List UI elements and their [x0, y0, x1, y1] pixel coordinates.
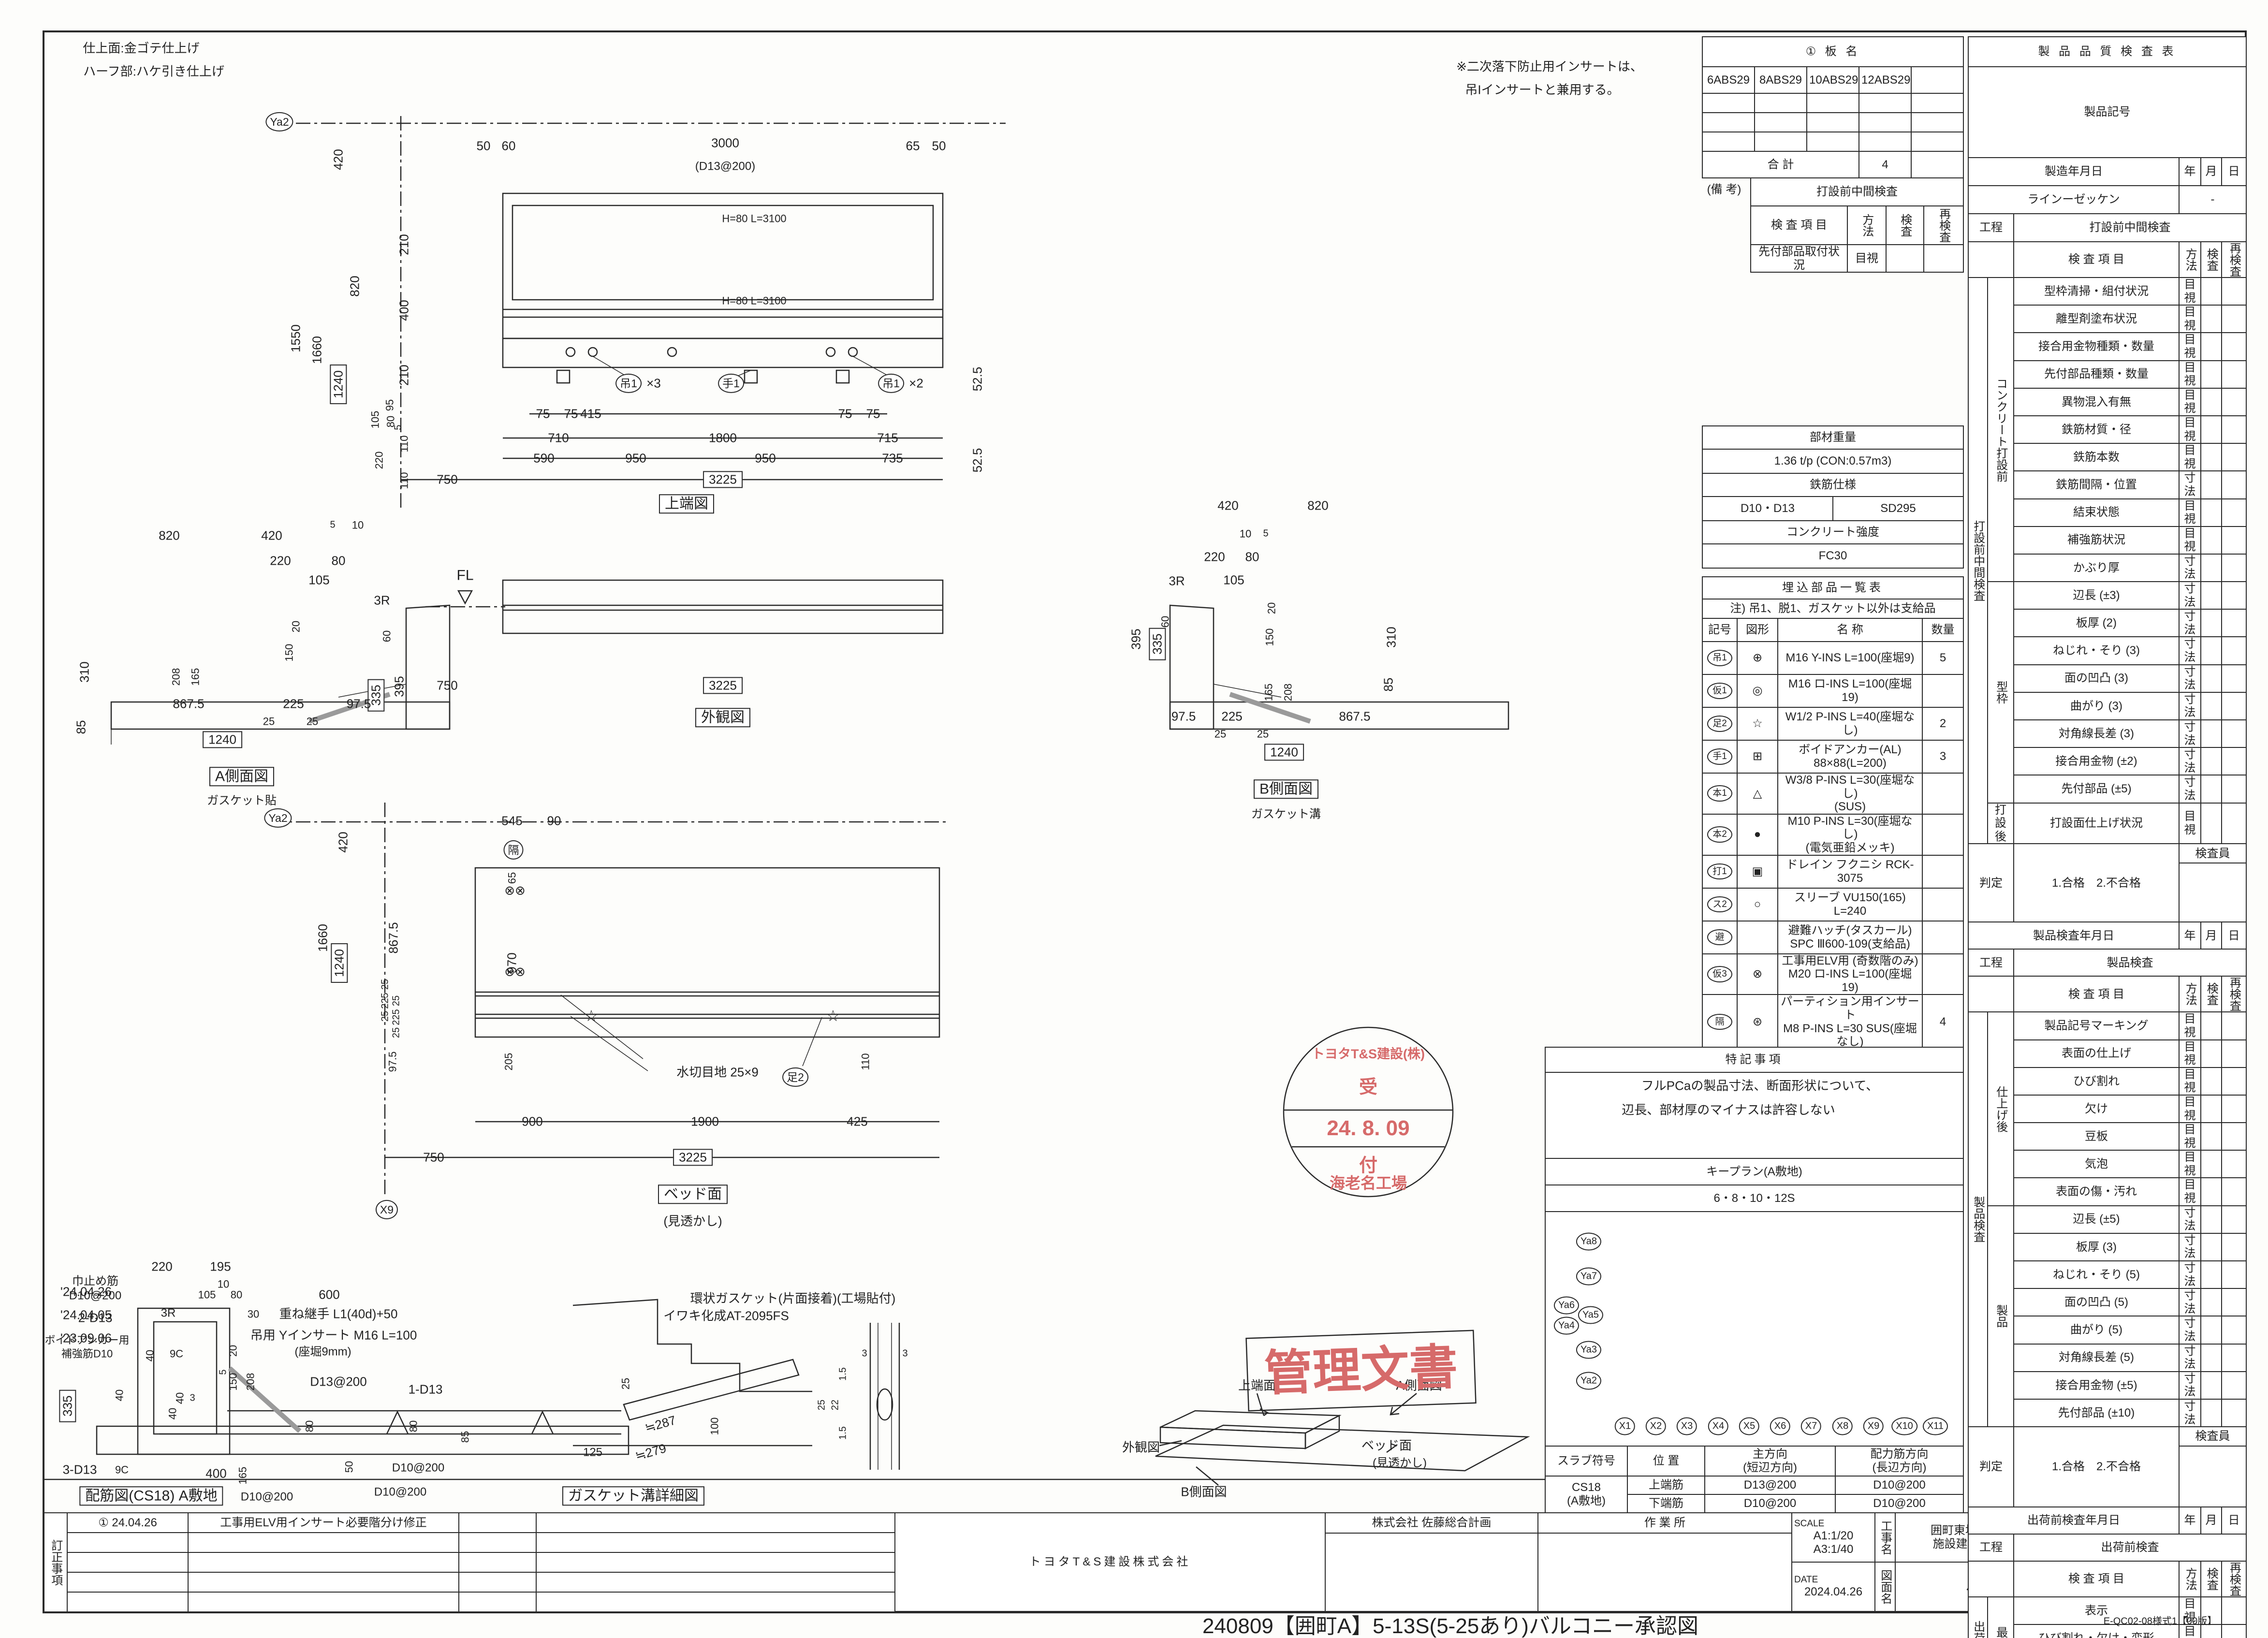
dim-label: Ya7: [1576, 1268, 1601, 1286]
cell-titleblock: 工事名: [1875, 1513, 1895, 1562]
cell-quality: 出荷前検査年月日: [1968, 1507, 2179, 1534]
dim-label: 400: [205, 1467, 226, 1480]
dim-label: 外観図: [1122, 1441, 1160, 1454]
cell-parts: 足2: [1702, 707, 1737, 740]
dim-label: 1.5: [838, 1426, 849, 1440]
cell-quality: 対角線長差 (3): [2014, 720, 2179, 747]
cell-quality: 製品検査: [1968, 1012, 1988, 1427]
dim-label: 85: [1382, 678, 1395, 692]
dim-label: 97.5: [1171, 710, 1196, 723]
cell-parts: W3/8 P-INS L=30(座堀なし)(SUS): [1778, 773, 1922, 814]
dim-label: 1900: [691, 1115, 719, 1128]
cell-quality: 出荷前検査: [1968, 1597, 1988, 1638]
table-weight: 部材重量1.36 t/p (CON:0.57m3)鉄筋仕様D10・D13SD29…: [1702, 425, 1964, 569]
dim-label: 420: [332, 149, 345, 170]
cell-slab: 配力筋方向(長辺方向): [1835, 1446, 1963, 1476]
cell-revision: [188, 1552, 459, 1572]
cell-quality: [2222, 278, 2246, 305]
cell-quality: [2222, 1372, 2246, 1399]
cell-quality: 工程: [1968, 949, 2014, 976]
dim-label: 395: [393, 676, 406, 697]
special-notes-title: 特記事項: [1545, 1047, 1963, 1072]
cell-weight: コンクリート強度: [1702, 521, 1963, 544]
cell-parts: 仮3: [1702, 954, 1737, 995]
cell-quality: 再検査: [2222, 976, 2246, 1012]
cell-keyplanbox: 6・8・10・12S: [1545, 1185, 1963, 1212]
view-title-bed: ベッド面: [658, 1185, 728, 1204]
cell-quality: [2201, 554, 2222, 582]
dim-label: 25: [263, 716, 275, 727]
cell-itaban: [1702, 113, 1755, 132]
dim-label: H=80 L=3100: [722, 295, 786, 306]
cell-parts: 隔: [1702, 994, 1737, 1049]
cell-quality: 目視: [2179, 333, 2201, 360]
dim-label: 420: [337, 832, 350, 852]
cell-slab: D10@200: [1835, 1476, 1963, 1494]
dim-label: 750: [423, 1151, 444, 1164]
cell-quality: 目視: [2179, 443, 2201, 471]
cell-precheck: 打設前中間検査: [1751, 178, 1963, 206]
cell-parts: パーティション用インサートM8 P-INS L=30 SUS(座堀なし): [1778, 994, 1922, 1049]
cell-revision: [67, 1533, 188, 1552]
cell-itaban: [1911, 67, 1963, 93]
cell-quality: [2201, 443, 2222, 471]
cell-titleblock: SCALEA1:1/20A3:1/40: [1792, 1513, 1875, 1562]
dim-label: 867.5: [173, 697, 204, 710]
dim-label: 75: [838, 407, 852, 420]
dim-label: 105: [1223, 573, 1244, 586]
cell-quality: 方法: [2179, 1561, 2201, 1597]
embedded-parts-title: 埋込部品一覧表: [1702, 577, 1963, 599]
table-keyplanbox: キープラン(A敷地)6・8・10・12S: [1545, 1158, 1964, 1447]
dim-label: 吊1: [878, 374, 904, 393]
cell-parts: △: [1737, 773, 1778, 814]
cell-quality: [2201, 526, 2222, 554]
cell-itaban: [1911, 151, 1963, 178]
view-title-side-b: B側面図: [1254, 779, 1318, 799]
cell-quality: [1968, 976, 2014, 1012]
dim-label: 巾止め筋: [72, 1275, 118, 1287]
dim-label: 3-D13: [63, 1463, 97, 1476]
table-parts: 埋込部品一覧表注) 吊1、脱1、ガスケット以外は支給品記号図形名 称数量吊1⊕M…: [1702, 576, 1964, 1071]
cell-quality: [2201, 1095, 2222, 1123]
dim-label: 225: [283, 697, 304, 710]
cell-quality: 寸法: [2179, 1288, 2201, 1316]
dim-label: X10: [1891, 1418, 1917, 1435]
dim-label: 735: [882, 452, 903, 465]
cell-sato: [1325, 1533, 1538, 1611]
dim-label: 395: [1129, 629, 1142, 649]
dim-label: D10@200: [69, 1289, 121, 1302]
cell-parts: ○: [1737, 888, 1778, 921]
dim-label: ⊗⊗: [504, 884, 526, 897]
cell-revision: [188, 1592, 459, 1612]
dim-label: 補強筋D10: [61, 1348, 113, 1359]
cell-quality: 方法: [2179, 242, 2201, 278]
cell-quality: [2222, 1095, 2246, 1123]
cell-revision: 訂正事項: [44, 1513, 67, 1612]
cell-quality: 鉄筋本数: [2014, 443, 2179, 471]
dim-label: 65: [506, 872, 517, 884]
cell-parts: ▣: [1737, 855, 1778, 888]
gasket-section-mini: [870, 1323, 899, 1470]
cell-quality: 検査員: [2179, 844, 2246, 863]
dim-label: (座堀9mm): [294, 1345, 351, 1358]
cell-quality: [2222, 1123, 2246, 1150]
cell-parts: [1737, 921, 1778, 954]
cell-quality: 辺長 (±3): [2014, 582, 2179, 609]
dim-label: 1660: [316, 924, 329, 952]
insert-note-2: 吊Iインサートと兼用する。: [1465, 83, 1619, 96]
cell-quality: 製品検査: [2014, 949, 2246, 976]
cell-quality: 打設面仕上げ状況: [2014, 803, 2179, 844]
dim-label: 3: [190, 1393, 195, 1404]
dim-label: 335: [1149, 628, 1166, 660]
cell-quality: 表面の仕上げ: [2014, 1040, 2179, 1068]
cell-precheck: [1886, 245, 1924, 272]
cell-quality: 寸法: [2179, 720, 2201, 747]
dim-label: 225: [392, 1009, 402, 1025]
cell-quality: 寸法: [2179, 692, 2201, 720]
dim-label: 50: [477, 139, 491, 152]
cell-quality: 対角線長差 (5): [2014, 1344, 2179, 1372]
cell-itaban: 4: [1859, 151, 1911, 178]
dim-label: 30: [248, 1308, 259, 1319]
view-title-side-a: A側面図: [209, 767, 274, 786]
cell-quality: 目視: [2179, 1012, 2201, 1039]
cell-quality: [2201, 775, 2222, 803]
cell-parts: 避: [1702, 921, 1737, 954]
cell-weight: FC30: [1702, 544, 1963, 568]
cell-quality: 鉄筋間隔・位置: [2014, 471, 2179, 498]
cell-quality: 検査: [2201, 976, 2222, 1012]
cell-quality: ねじれ・そり (5): [2014, 1261, 2179, 1288]
cell-quality: 結束状態: [2014, 499, 2179, 526]
dim-label: 105: [369, 411, 380, 429]
dim-label: 165: [1263, 684, 1274, 702]
view-side-a: [111, 591, 472, 745]
cell-quality: [2222, 1040, 2246, 1068]
dim-label: ☆: [826, 1008, 840, 1024]
dim-label: 1240: [331, 943, 348, 983]
finish-note-2: ハーフ部:ハケ引き仕上げ: [83, 65, 224, 78]
table-revision: 訂正事項① 24.04.26工事用ELV用インサート必要階分け修正: [44, 1512, 895, 1612]
cell-parts: 工事用ELV用 (奇数階のみ)M20 ロ-INS L=100(座堀19): [1778, 954, 1922, 995]
cell-quality: 目視: [2179, 278, 2201, 305]
dim-label: 20: [1266, 602, 1277, 614]
cell-quality: [2222, 1012, 2246, 1039]
cell-quality: 目視: [2179, 305, 2201, 333]
cell-quality: [2201, 333, 2222, 360]
cell-quality: 工程: [1968, 214, 2014, 242]
footer-approval-note: 240809【囲町A】5-13S(5-25あり)バルコニー承認図: [1202, 1615, 1698, 1638]
revision-note: 工事用ELV用インサート必要階分け修正: [188, 1513, 459, 1533]
cell-quality: [2222, 1288, 2246, 1316]
cell-quality: [2222, 1399, 2246, 1427]
dim-label: 10: [218, 1278, 229, 1289]
dim-label: 1240: [203, 731, 242, 748]
dim-label: 335: [59, 1389, 76, 1422]
dim-label: 3R: [161, 1307, 176, 1319]
cell-quality: 寸法: [2179, 471, 2201, 498]
cell-quality: 寸法: [2179, 1344, 2201, 1372]
dim-label: Ya8: [1576, 1233, 1601, 1251]
dim-label: 52.5: [971, 367, 984, 392]
dim-label: 80: [1245, 550, 1259, 563]
cell-sato: 作 業 所: [1538, 1513, 1792, 1533]
cell-quality: [2201, 1040, 2222, 1068]
cell-revision: [536, 1513, 895, 1533]
cell-quality: 鉄筋材質・径: [2014, 416, 2179, 443]
cell-revision: [459, 1592, 536, 1612]
cell-quality: 1.合格 2.不合格: [2014, 844, 2179, 922]
cell-slab: D10@200: [1705, 1494, 1835, 1513]
cell-itaban: [1911, 132, 1963, 151]
dim-label: (見透かし): [1373, 1457, 1427, 1469]
cell-quality: [2201, 1288, 2222, 1316]
cell-quality: 寸法: [2179, 1261, 2201, 1288]
dim-label: 750: [437, 473, 457, 486]
cell-quality: 検 査 項 目: [2014, 976, 2179, 1012]
cell-quality: [2201, 803, 2222, 844]
cell-quality: 曲がり (5): [2014, 1316, 2179, 1344]
dim-label: 22: [831, 1400, 841, 1410]
dim-label: 25: [380, 979, 391, 990]
dim-label: 85: [74, 720, 88, 734]
cell-quality: 先付部品種類・数量: [2014, 361, 2179, 388]
cell-quality: [2222, 305, 2246, 333]
cell-quality: 寸法: [2179, 747, 2201, 775]
cell-itaban: [1911, 93, 1963, 113]
dim-label: 辺長、部材厚のマイナスは許容しない: [1622, 1103, 1835, 1116]
cell-quality: [2201, 278, 2222, 305]
cell-slab: D13@200: [1705, 1476, 1835, 1494]
view-top: [401, 193, 943, 480]
cell-quality: 目視: [2179, 1178, 2201, 1205]
cell-parts: [1922, 674, 1963, 707]
dim-label: 150: [283, 644, 294, 662]
keyplan-title: キープラン(A敷地): [1545, 1158, 1963, 1185]
cell-quality: [2201, 305, 2222, 333]
cell-quality: [2201, 1261, 2222, 1288]
cell-quality: 気泡: [2014, 1150, 2179, 1178]
dim-label: 80: [231, 1289, 242, 1300]
cell-parts: 名 称: [1778, 618, 1922, 642]
cell-quality: 月: [2201, 1507, 2222, 1534]
cell-parts: スリーブ VU150(165) L=240: [1778, 888, 1922, 921]
dim-label: ×3: [646, 377, 661, 390]
dim-label: ×2: [909, 377, 923, 390]
cell-revision: [459, 1572, 536, 1592]
dim-label: 225: [1221, 710, 1242, 723]
dim-label: 3R: [374, 594, 390, 607]
cell-parts: ⊗: [1737, 954, 1778, 995]
cell-revision: [459, 1513, 536, 1533]
cell-quality: 年: [2179, 922, 2201, 949]
dim-label: 85: [459, 1431, 470, 1443]
dim-label: 820: [1307, 499, 1328, 512]
cell-parts: ⊕: [1737, 642, 1778, 674]
cell-quality: 寸法: [2179, 1399, 2201, 1427]
cell-keyplanbox: [1545, 1212, 1963, 1446]
dim-label: 820: [348, 276, 361, 296]
cell-quality: 検査員: [2179, 1427, 2246, 1446]
cell-quality: 目視: [2179, 1123, 2201, 1150]
dim-label: 60: [1159, 616, 1171, 628]
cell-parts: M10 P-INS L=30(座堀なし)(電気亜鉛メッキ): [1778, 814, 1922, 855]
cell-quality: 表面の傷・汚れ: [2014, 1178, 2179, 1205]
view-title-top: 上端図: [659, 494, 714, 513]
cell-quality: 目視: [2179, 1095, 2201, 1123]
cell-quality: [2222, 1233, 2246, 1261]
cell-quality: 年: [2179, 1507, 2201, 1534]
dim-label: 40: [114, 1389, 125, 1401]
cell-quality: 欠け: [2014, 1095, 2179, 1123]
cell-parts: 本2: [1702, 814, 1737, 855]
dim-label: 80: [408, 1420, 419, 1432]
company-name: トヨタT&S建設株式会社: [895, 1513, 1325, 1611]
cell-itaban: [1807, 113, 1859, 132]
cell-quality: 寸法: [2179, 1233, 2201, 1261]
cell-quality: [2201, 637, 2222, 664]
cell-parts: 3: [1922, 740, 1963, 773]
cell-quality: [2201, 1344, 2222, 1372]
dim-label: 420: [261, 529, 282, 542]
cell-quality: 目視: [2179, 361, 2201, 388]
cell-parts: ☆: [1737, 707, 1778, 740]
cell-quality: [2201, 609, 2222, 637]
cell-itaban: [1755, 93, 1807, 113]
dim-label: 545: [501, 814, 522, 827]
cell-parts: ドレイン フクニシ RCK-3075: [1778, 855, 1922, 888]
dim-label: 25: [392, 1027, 402, 1038]
cell-parts: 注) 吊1、脱1、ガスケット以外は支給品: [1702, 599, 1963, 618]
dim-label: 220: [1204, 550, 1225, 563]
cell-quality: 面の凹凸 (5): [2014, 1288, 2179, 1316]
cell-parts: 5: [1922, 642, 1963, 674]
dim-label: フルPCaの製品寸法、断面形状について、: [1641, 1079, 1879, 1092]
cell-quality: 面の凹凸 (3): [2014, 665, 2179, 692]
dim-label: 25: [620, 1378, 631, 1389]
dim-label: 10: [1240, 528, 1251, 539]
dim-label: 隔: [504, 840, 524, 860]
dim-label: 25: [307, 716, 318, 727]
view-title-gasket-detail: ガスケット溝詳細図: [562, 1486, 704, 1506]
dim-label: 20: [227, 1345, 238, 1357]
dim-label: (D13@200): [695, 160, 755, 172]
cell-quality: 豆板: [2014, 1123, 2179, 1150]
dim-label: 60: [502, 139, 516, 152]
dim-label: 1240: [1264, 744, 1304, 760]
cell-quality: 方法: [2179, 976, 2201, 1012]
dim-label: 吊用 Yインサート M16 L=100: [250, 1329, 417, 1342]
view-elevation: [503, 580, 943, 633]
dim-label: D10@200: [392, 1462, 444, 1474]
cell-quality: [2222, 1150, 2246, 1178]
dim-label: 950: [625, 452, 646, 465]
dim-label: 820: [159, 529, 179, 542]
cell-quality: 検 査 項 目: [2014, 242, 2179, 278]
cell-quality: [2201, 1206, 2222, 1233]
dim-label: 750: [437, 679, 457, 692]
cell-parts: [1922, 773, 1963, 814]
cell-quality: 出荷前検査: [2014, 1534, 2246, 1561]
cell-quality: 目視: [2179, 1040, 2201, 1068]
cell-quality: [2201, 665, 2222, 692]
cell-precheck: 方法: [1847, 206, 1886, 245]
table-precheck: 打設前中間検査検 査 項 目方法検査再検査先付部品取付状況目視: [1750, 177, 1964, 273]
dim-label: 3: [862, 1349, 867, 1359]
cell-precheck: 検査: [1886, 206, 1924, 245]
cell-quality: 辺長 (±5): [2014, 1206, 2179, 1233]
cell-quality: ひび割れ: [2014, 1068, 2179, 1095]
dim-label: 165: [237, 1467, 248, 1485]
cell-slab: D10@200: [1835, 1494, 1963, 1513]
cell-quality: [2222, 361, 2246, 388]
drawing-sheet: 仕上面:金ゴテ仕上げハーフ部:ハケ引き仕上げ※二次落下防止用インサートは、吊Iイ…: [0, 0, 2268, 1638]
cell-sato: [1538, 1533, 1792, 1611]
cell-sato: 株式会社 佐藤総合計画: [1325, 1513, 1538, 1533]
cell-quality: 補強筋状況: [2014, 526, 2179, 554]
dim-label: 手1: [718, 374, 744, 393]
cell-parts: [1922, 954, 1963, 995]
cell-quality: [2222, 1178, 2246, 1205]
cell-quality: 寸法: [2179, 665, 2201, 692]
dim-label: 208: [1282, 684, 1293, 702]
cell-itaban: 合 計: [1702, 151, 1859, 178]
cell-quality: 日: [2222, 1507, 2246, 1534]
stamp-date: 24. 8. 09: [1327, 1117, 1409, 1140]
dim-label: 220: [151, 1260, 172, 1273]
dim-label: ガスケット溝: [1251, 808, 1321, 820]
cell-revision: [536, 1572, 895, 1592]
cell-parts: 手1: [1702, 740, 1737, 773]
cell-weight: 鉄筋仕様: [1702, 473, 1963, 497]
dim-label: 97.5: [387, 1052, 398, 1072]
cell-quality: 日: [2222, 922, 2246, 949]
insert-note-1: ※二次落下防止用インサートは、: [1456, 60, 1643, 73]
cell-quality: [2201, 361, 2222, 388]
dim-label: 25: [380, 1011, 391, 1022]
cell-quality: 寸法: [2179, 775, 2201, 803]
dim-label: 5: [1263, 529, 1268, 539]
dim-label: 225: [380, 993, 391, 1009]
dim-label: 5: [330, 520, 335, 530]
dim-label: 205: [503, 1053, 514, 1071]
cell-precheck: 先付部品取付状況: [1751, 245, 1847, 272]
cell-parts: 避難ハッチ(タスカール)SPC Ⅲ600-109(支給品): [1778, 921, 1922, 954]
dim-label: Ya3: [1576, 1341, 1601, 1359]
dim-label: 吊1: [615, 374, 642, 393]
dim-label: 105: [308, 573, 329, 586]
cell-itaban: 12ABS29: [1859, 67, 1911, 93]
stamp-factory: 海老名工場: [1330, 1175, 1407, 1192]
cell-quality: 先付部品 (±5): [2014, 775, 2179, 803]
cell-itaban: [1859, 113, 1911, 132]
cell-parts: [1922, 855, 1963, 888]
cell-quality: 年: [2179, 158, 2201, 186]
dim-label: FL: [456, 568, 473, 583]
cell-quality: 製品記号: [1968, 67, 2246, 158]
cell-parts: ス2: [1702, 888, 1737, 921]
cell-quality: 寸法: [2179, 1316, 2201, 1344]
dim-label: 40: [144, 1350, 155, 1361]
table-slab: スラブ符号位 置主方向(短辺方向)配力筋方向(長辺方向)CS18(A敷地)上端筋…: [1545, 1446, 1964, 1513]
cell-quality: 製品: [1988, 1206, 2014, 1427]
cell-slab: CS18(A敷地): [1545, 1476, 1627, 1513]
cell-quality: [2222, 1206, 2246, 1233]
cell-revision: [188, 1533, 459, 1552]
